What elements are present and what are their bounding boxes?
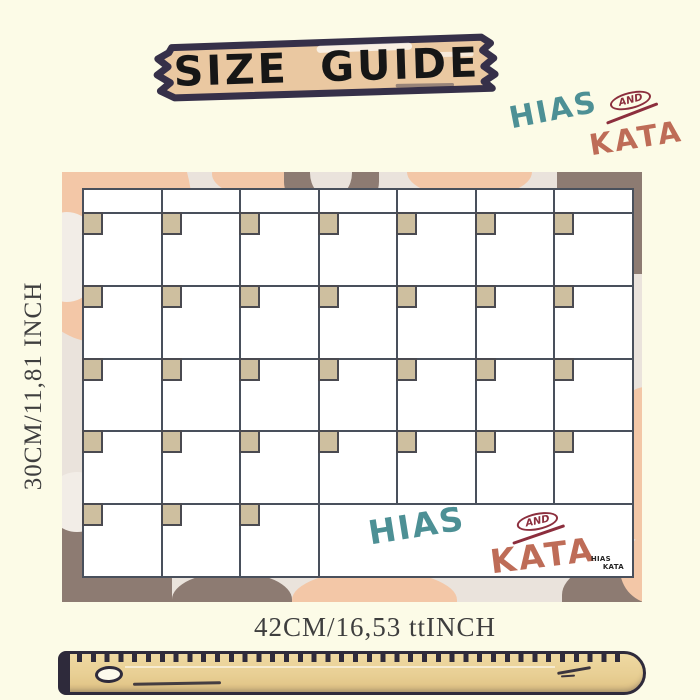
corner-tab — [161, 430, 182, 453]
header-cell — [163, 190, 240, 212]
calendar-cell — [241, 505, 318, 576]
corner-tab — [475, 212, 496, 235]
ruler-sketch-mark — [557, 666, 591, 674]
corner-tab — [475, 430, 496, 453]
brand-and: AND — [608, 87, 653, 114]
watermark-kata: KATA — [488, 533, 597, 579]
calendar-cell — [84, 505, 161, 576]
height-dimension-label: 30CM/11,81 INCH — [20, 251, 50, 521]
watermark-hias: HIAS — [366, 502, 467, 550]
calendar-board: HIAS AND KATA HIAS KATA — [62, 172, 642, 602]
brand-hias: HIAS — [507, 88, 600, 134]
ruler-hole — [95, 665, 124, 683]
calendar-cell — [398, 432, 475, 503]
brand-and-badge: AND — [607, 83, 653, 114]
corner-tab — [239, 503, 260, 526]
corner-tab — [553, 212, 574, 235]
banner-label: SIZE GUIDE — [173, 38, 481, 96]
corner-tab — [318, 212, 339, 235]
brand-cell-content: HIAS AND KATA HIAS KATA — [320, 505, 632, 576]
ruler — [58, 651, 646, 695]
ruler-shadow-streak — [133, 681, 221, 686]
corner-tab — [161, 285, 182, 308]
corner-tab — [396, 285, 417, 308]
corner-tab — [161, 503, 182, 526]
calendar-cell — [477, 360, 554, 431]
corner-brand-mark: HIAS KATA — [591, 556, 624, 571]
corner-tab — [161, 358, 182, 381]
calendar-cell — [555, 432, 632, 503]
corner-tab — [239, 212, 260, 235]
corner-tab — [239, 430, 260, 453]
header-cell — [477, 190, 554, 212]
calendar-cell — [163, 505, 240, 576]
calendar-cell — [398, 287, 475, 358]
ruler-ticks — [77, 654, 625, 662]
corner-tab — [239, 285, 260, 308]
corner-tab — [239, 358, 260, 381]
corner-tab — [82, 285, 103, 308]
corner-tab — [318, 358, 339, 381]
corner-tab — [475, 358, 496, 381]
ruler-highlight — [125, 666, 555, 668]
header-cell — [555, 190, 632, 212]
calendar-cell — [241, 432, 318, 503]
calendar-cell — [320, 360, 397, 431]
calendar-cell — [398, 214, 475, 285]
size-guide-banner: SIZE GUIDE — [147, 25, 510, 111]
header-cell — [398, 190, 475, 212]
header-cell — [84, 190, 161, 212]
size-guide-page: SIZE GUIDE HIAS AND KATA HIAS AND KA — [0, 0, 700, 700]
calendar-cell — [555, 287, 632, 358]
calendar-cell — [84, 287, 161, 358]
corner-tab — [318, 430, 339, 453]
width-dimension-label: 42CM/16,53 ttINCH — [195, 612, 555, 643]
calendar-cell — [163, 214, 240, 285]
ruler-sketch-mark-small — [561, 675, 575, 678]
calendar-cell — [320, 214, 397, 285]
corner-tab — [396, 358, 417, 381]
calendar-cell — [555, 360, 632, 431]
calendar-cell — [477, 214, 554, 285]
brand-kata: KATA — [587, 117, 685, 160]
corner-tab — [318, 285, 339, 308]
calendar-cell — [84, 432, 161, 503]
corner-tab — [161, 212, 182, 235]
calendar-cell — [163, 287, 240, 358]
corner-tab — [396, 212, 417, 235]
corner-tab — [553, 358, 574, 381]
corner-tab — [475, 285, 496, 308]
watermark-and: AND — [515, 509, 560, 534]
calendar-cell — [477, 432, 554, 503]
calendar-cell — [555, 214, 632, 285]
corner-tab — [82, 358, 103, 381]
corner-tab — [553, 430, 574, 453]
corner-tab — [82, 430, 103, 453]
calendar-cell — [320, 432, 397, 503]
watermark-and-badge: AND — [514, 505, 560, 534]
corner-tab — [396, 430, 417, 453]
header-cell — [241, 190, 318, 212]
calendar-cell — [241, 360, 318, 431]
calendar-cell — [163, 432, 240, 503]
brand-cell: HIAS AND KATA HIAS KATA — [320, 505, 632, 576]
calendar-cell — [163, 360, 240, 431]
calendar-cell — [241, 214, 318, 285]
corner-mark-line2: KATA — [603, 564, 624, 571]
header-cell — [320, 190, 397, 212]
brand-logo: HIAS AND KATA — [503, 84, 699, 164]
calendar-cell — [320, 287, 397, 358]
calendar-grid: HIAS AND KATA HIAS KATA — [82, 188, 634, 578]
calendar-cell — [398, 360, 475, 431]
calendar-cell — [84, 360, 161, 431]
calendar-cell — [241, 287, 318, 358]
corner-tab — [82, 503, 103, 526]
corner-tab — [553, 285, 574, 308]
calendar-cell — [477, 287, 554, 358]
corner-tab — [82, 212, 103, 235]
calendar-cell — [84, 214, 161, 285]
